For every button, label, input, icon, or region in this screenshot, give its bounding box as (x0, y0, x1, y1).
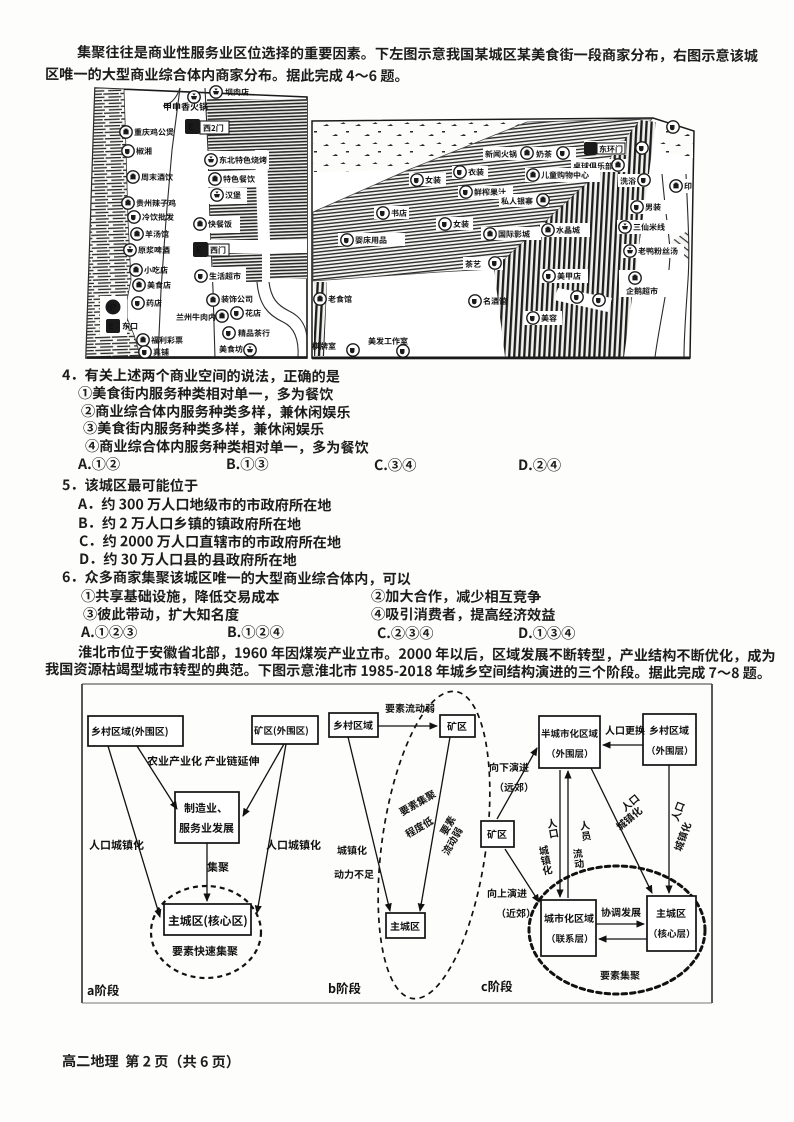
svg-text:矿区: 矿区 (447, 718, 467, 733)
svg-text:原浆啤酒: 原浆啤酒 (138, 245, 170, 256)
svg-text:精品茶行: 精品茶行 (238, 328, 270, 339)
svg-text:集聚: 集聚 (207, 859, 229, 875)
svg-text:制造业、: 制造业、 (184, 800, 228, 816)
svg-text:城镇化: 城镇化 (337, 842, 367, 857)
svg-text:乡村区域: 乡村区域 (649, 722, 689, 737)
svg-text:周末酒饮: 周末酒饮 (141, 172, 173, 183)
svg-text:水晶城: 水晶城 (556, 225, 580, 236)
svg-text:E: E (109, 321, 114, 332)
svg-text:程度低: 程度低 (402, 813, 435, 841)
svg-text:美食店: 美食店 (147, 280, 171, 291)
svg-text:奶茶: 奶茶 (536, 149, 552, 160)
svg-text:书店: 书店 (391, 208, 407, 219)
svg-text:向上演进: 向上演进 (487, 885, 527, 900)
svg-text:洗浴: 洗浴 (620, 176, 636, 187)
svg-text:冷饮批发: 冷饮批发 (142, 212, 174, 223)
svg-text:要素集聚: 要素集聚 (396, 786, 438, 819)
svg-text:茶艺: 茶艺 (465, 259, 481, 270)
svg-text:E: E (188, 120, 194, 133)
svg-text:城镇化: 城镇化 (670, 820, 694, 853)
svg-text:矿区: 矿区 (487, 826, 507, 841)
svg-text:企鹅超市: 企鹅超市 (626, 286, 658, 297)
svg-text:美甲店: 美甲店 (557, 271, 581, 282)
svg-text:西2门: 西2门 (203, 123, 224, 134)
svg-text:美容: 美容 (541, 313, 557, 324)
svg-text:女装: 女装 (425, 175, 441, 186)
svg-text:汉堡: 汉堡 (225, 190, 241, 201)
svg-text:快餐饭: 快餐饭 (208, 219, 232, 230)
svg-text:老食馆: 老食馆 (328, 294, 352, 305)
svg-text:衣装: 衣装 (468, 167, 484, 178)
svg-text:人口城镇化: 人口城镇化 (266, 837, 321, 853)
svg-text:人口更换: 人口更换 (605, 722, 645, 737)
svg-text:老鸭粉丝汤: 老鸭粉丝汤 (638, 246, 678, 257)
svg-text:要素集聚: 要素集聚 (600, 967, 640, 982)
svg-text:药店: 药店 (146, 298, 162, 309)
svg-text:花店: 花店 (245, 308, 261, 319)
svg-text:城镇化: 城镇化 (612, 803, 645, 834)
svg-text:主城区(核心区): 主城区(核心区) (168, 912, 248, 929)
svg-text:甲申香火锅: 甲申香火锅 (163, 100, 208, 113)
svg-text:（联系层）: （联系层） (546, 931, 594, 945)
svg-text:农业产业化 产业链延伸: 农业产业化 产业链延伸 (147, 753, 260, 769)
svg-text:主城区: 主城区 (656, 905, 686, 920)
svg-text:P: P (110, 299, 117, 314)
svg-text:印: 印 (684, 181, 692, 192)
svg-text:a阶段: a阶段 (87, 980, 120, 999)
svg-text:小吃店: 小吃店 (144, 265, 168, 276)
svg-text:城镇化: 城镇化 (536, 844, 556, 876)
svg-text:男装: 男装 (645, 202, 661, 213)
svg-text:真铺: 真铺 (153, 347, 169, 358)
svg-text:东口: 东口 (122, 321, 138, 332)
svg-text:乡村区域: 乡村区域 (333, 717, 373, 732)
svg-text:棋牌室: 棋牌室 (312, 341, 336, 352)
svg-text:动力不足: 动力不足 (334, 866, 374, 881)
svg-text:人口: 人口 (544, 817, 562, 840)
svg-text:特色餐饮: 特色餐饮 (223, 174, 255, 185)
svg-text:b阶段: b阶段 (328, 978, 362, 997)
svg-text:人口: 人口 (667, 799, 688, 823)
svg-text:西门: 西门 (210, 245, 226, 256)
svg-text:要素快速集聚: 要素快速集聚 (172, 943, 238, 959)
svg-text:城市化区域: 城市化区域 (544, 910, 594, 925)
svg-text:东环门: 东环门 (599, 144, 623, 155)
svg-text:（外围层）: （外围层） (646, 743, 694, 757)
svg-text:婴床用品: 婴床用品 (355, 235, 387, 246)
svg-text:东北特色烧烤: 东北特色烧烤 (219, 155, 267, 166)
svg-text:名酒馆: 名酒馆 (483, 296, 507, 307)
svg-text:女装: 女装 (453, 219, 469, 230)
svg-text:羊汤馆: 羊汤馆 (145, 229, 169, 240)
svg-text:（远郊）: （远郊） (494, 779, 534, 794)
svg-text:国际影城: 国际影城 (498, 229, 530, 240)
svg-text:坝肉店: 坝肉店 (225, 87, 249, 98)
svg-text:生活超市: 生活超市 (209, 271, 241, 282)
svg-text:主城区: 主城区 (390, 918, 420, 933)
svg-text:人员: 人员 (577, 819, 595, 842)
svg-text:贵州辣子鸡: 贵州辣子鸡 (136, 198, 176, 209)
svg-text:私人银寨: 私人银寨 (501, 196, 533, 207)
svg-text:新闻火锅: 新闻火锅 (485, 149, 517, 160)
svg-text:乡村区域(外围区): 乡村区域(外围区) (91, 723, 169, 738)
svg-text:服务业发展: 服务业发展 (179, 820, 234, 836)
svg-text:儿童购物中心: 儿童购物中心 (541, 170, 589, 181)
svg-text:椒湘: 椒湘 (136, 146, 152, 157)
svg-text:（核心层）: （核心层） (648, 926, 696, 940)
svg-text:（外围层）: （外围层） (546, 746, 594, 760)
svg-text:E: E (196, 243, 202, 256)
svg-text:美食坊: 美食坊 (219, 344, 243, 355)
svg-text:流动: 流动 (570, 847, 588, 869)
svg-text:矿区(外围区): 矿区(外围区) (254, 723, 309, 737)
svg-text:协调发展: 协调发展 (601, 904, 641, 919)
svg-text:重庆鸡公煲: 重庆鸡公煲 (134, 127, 174, 138)
svg-text:半城市化区域: 半城市化区域 (541, 726, 599, 740)
svg-text:福利彩票: 福利彩票 (151, 335, 183, 346)
svg-text:三仙米线: 三仙米线 (633, 222, 665, 233)
svg-text:c阶段: c阶段 (481, 976, 513, 995)
svg-text:装饰公司: 装饰公司 (221, 294, 253, 305)
